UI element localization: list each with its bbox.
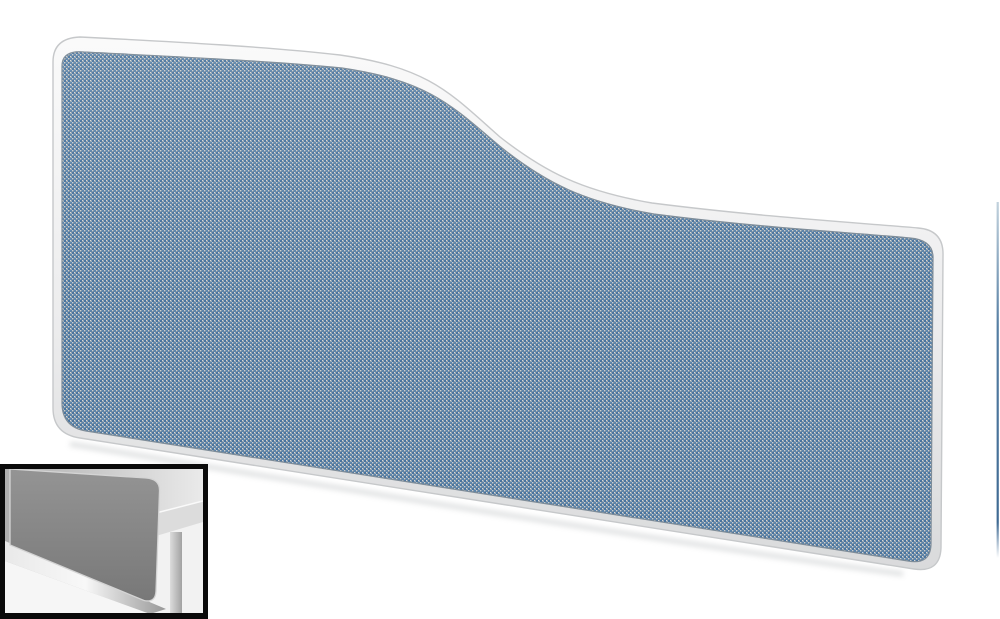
thumbnail-desk-leg <box>170 532 182 613</box>
adjacent-image-sliver <box>997 202 999 558</box>
product-photo-stage <box>0 0 1000 619</box>
gallery-thumbnail[interactable] <box>0 464 208 619</box>
main-product-image <box>0 0 1000 619</box>
